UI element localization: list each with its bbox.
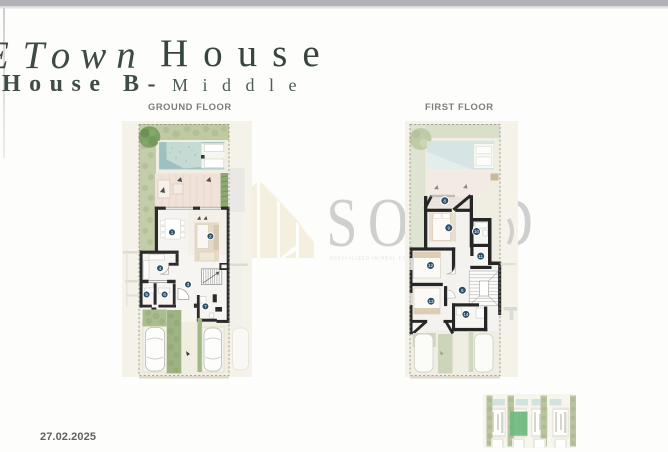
svg-text:7: 7	[204, 304, 207, 309]
svg-text:4: 4	[159, 266, 162, 271]
svg-text:8: 8	[444, 198, 447, 203]
svg-text:5: 5	[145, 292, 148, 297]
svg-text:6: 6	[163, 292, 166, 297]
svg-text:10: 10	[474, 229, 480, 234]
svg-text:11: 11	[478, 254, 483, 259]
svg-text:9: 9	[448, 226, 451, 231]
svg-text:1: 1	[171, 230, 174, 235]
svg-text:14: 14	[463, 312, 469, 317]
svg-text:13: 13	[428, 299, 434, 304]
svg-text:3: 3	[187, 282, 190, 287]
svg-text:2: 2	[209, 234, 212, 239]
svg-text:12: 12	[428, 263, 434, 268]
svg-text:6: 6	[461, 288, 464, 293]
